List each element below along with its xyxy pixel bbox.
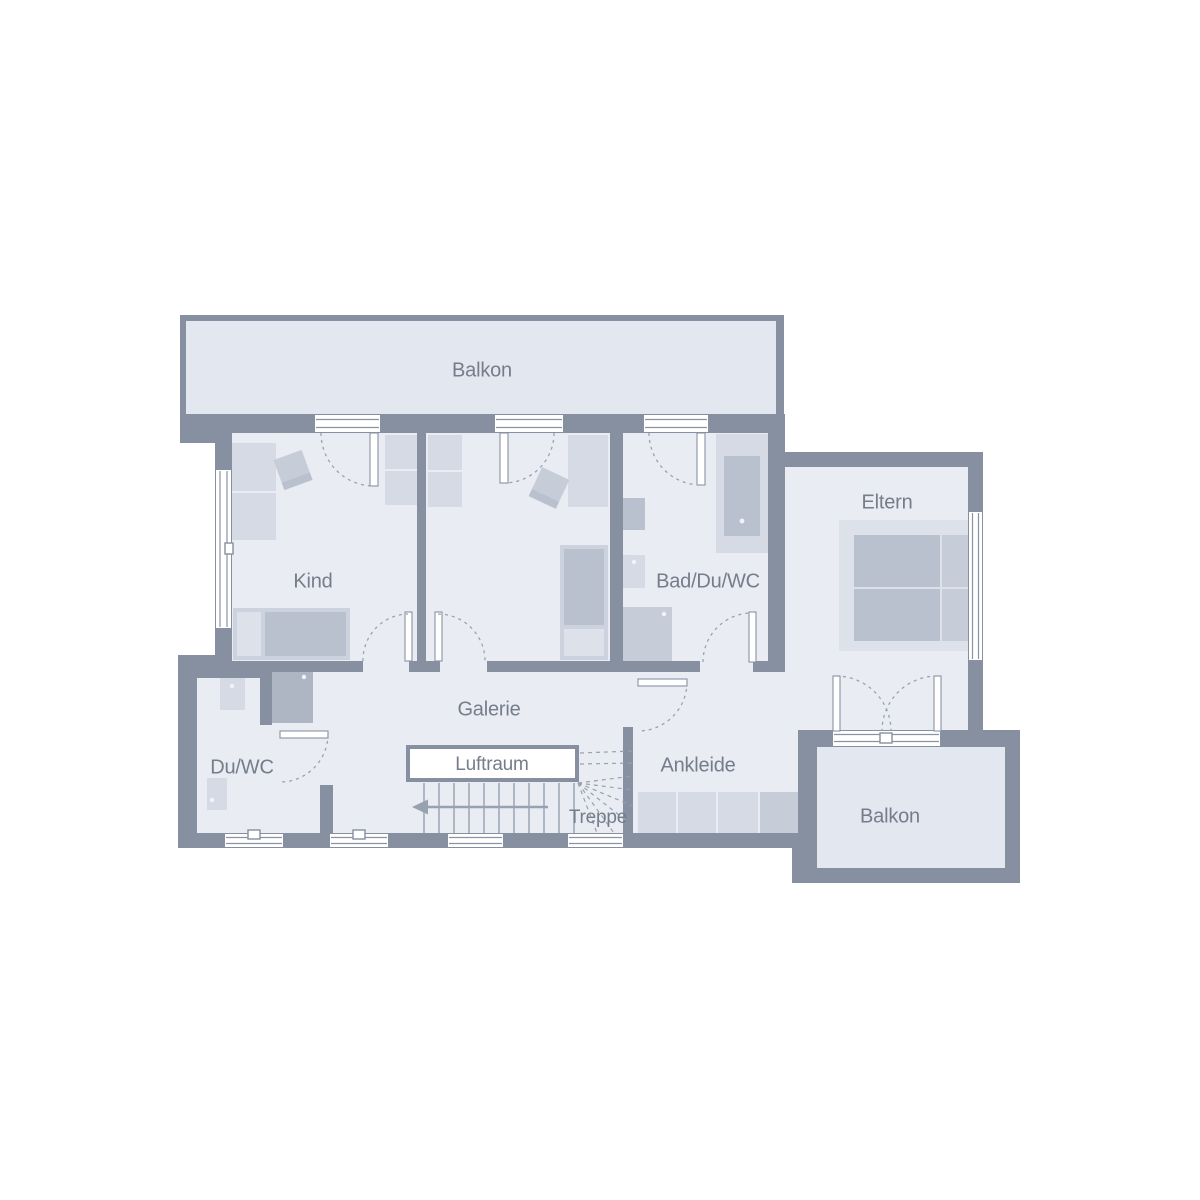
midroom-wardrobe-b (428, 472, 462, 507)
label-eltern: Eltern (861, 491, 912, 513)
bathtub-inner (724, 456, 760, 536)
bath-wc (623, 498, 645, 530)
midroom-bed-mattress (564, 549, 604, 625)
eltern-bed-mattress-b (854, 589, 940, 641)
duwc-north-wall (197, 667, 260, 678)
bathtub-drain (740, 519, 745, 524)
ankleide-wardrobe-4 (760, 792, 798, 833)
label-luftraum: Luftraum (455, 754, 528, 775)
duwc-east-wall (260, 667, 272, 725)
ankleide-wardrobe-2 (678, 792, 716, 833)
stair-window-2 (568, 834, 623, 847)
ankleide-wardrobe-1 (638, 792, 676, 833)
midroom-desk (568, 435, 608, 507)
partition-midroom-bath (610, 433, 623, 672)
stair-window-1 (448, 834, 503, 847)
label-bad-du-wc: Bad/Du/WC (656, 570, 760, 592)
gallery-north-wall-b (409, 661, 440, 672)
bath-balcony-door-frame (644, 415, 708, 432)
floor-plan-canvas: Balkon Kind Bad/Du/WC Eltern Du/WC Galer… (0, 0, 1200, 1200)
balcony-top-wall-left (180, 315, 186, 417)
duwc-wc (207, 778, 227, 810)
kind-window-handle (225, 543, 233, 554)
label-balkon-top: Balkon (452, 359, 512, 381)
label-galerie: Galerie (457, 698, 520, 720)
kind-shelf-upper (232, 443, 276, 491)
eltern-window (969, 512, 982, 660)
balcony-top-wall-right (776, 315, 784, 417)
balcony-top-wall-top (180, 315, 784, 321)
eltern-bed-pillow-a (942, 535, 968, 587)
floor-plan-drawing: Balkon Kind Bad/Du/WC Eltern Du/WC Galer… (0, 0, 1200, 1200)
eltern-balcony-door-sill (833, 731, 940, 746)
kind-wardrobe-b (385, 471, 417, 505)
northwest-corner-block (180, 433, 217, 443)
eltern-bed-mattress-a (854, 535, 940, 587)
midroom-bed-pillow (564, 629, 604, 656)
label-balkon-bottom: Balkon (860, 805, 920, 827)
midroom-balcony-door-frame (495, 415, 563, 432)
duwc-washbasin (220, 678, 245, 710)
balcony-bottom-wall-right (1005, 730, 1020, 883)
ankleide-east-wall (798, 730, 817, 848)
kind-wardrobe-a (385, 435, 417, 469)
bath-shower-head (662, 612, 666, 616)
eltern-balcony-door-handle (880, 733, 892, 743)
label-kind: Kind (293, 570, 332, 592)
gallery-wardrobe (272, 670, 313, 723)
duwc-wc-knob (210, 798, 214, 802)
label-treppe: Treppe (569, 807, 627, 828)
kind-balcony-door-frame (315, 415, 380, 432)
label-ankleide: Ankleide (660, 754, 735, 776)
ankleide-wardrobe-3 (718, 792, 758, 833)
balcony-bottom-wall-bottom (792, 868, 1020, 883)
duwc-window-handle (248, 830, 260, 839)
eltern-north-wall (768, 452, 983, 467)
midroom-wardrobe-a (428, 435, 462, 470)
gallery-north-wall-c (487, 661, 700, 672)
kind-bed-pillow (237, 612, 261, 656)
kind-window (216, 470, 233, 628)
label-du-wc: Du/WC (210, 756, 273, 778)
west-wall-lower (178, 655, 197, 848)
gallery-window-handle (353, 830, 365, 839)
gallery-wardrobe-knob (302, 675, 306, 679)
bath-washbasin-tap (632, 560, 636, 564)
eltern-bed-pillow-b (942, 589, 968, 641)
partition-kind-midroom (417, 433, 426, 661)
duwc-wall-stub (320, 785, 333, 833)
kind-bed-mattress (265, 612, 346, 656)
duwc-washbasin-tap (230, 684, 234, 688)
kind-shelf-lower (232, 493, 276, 540)
